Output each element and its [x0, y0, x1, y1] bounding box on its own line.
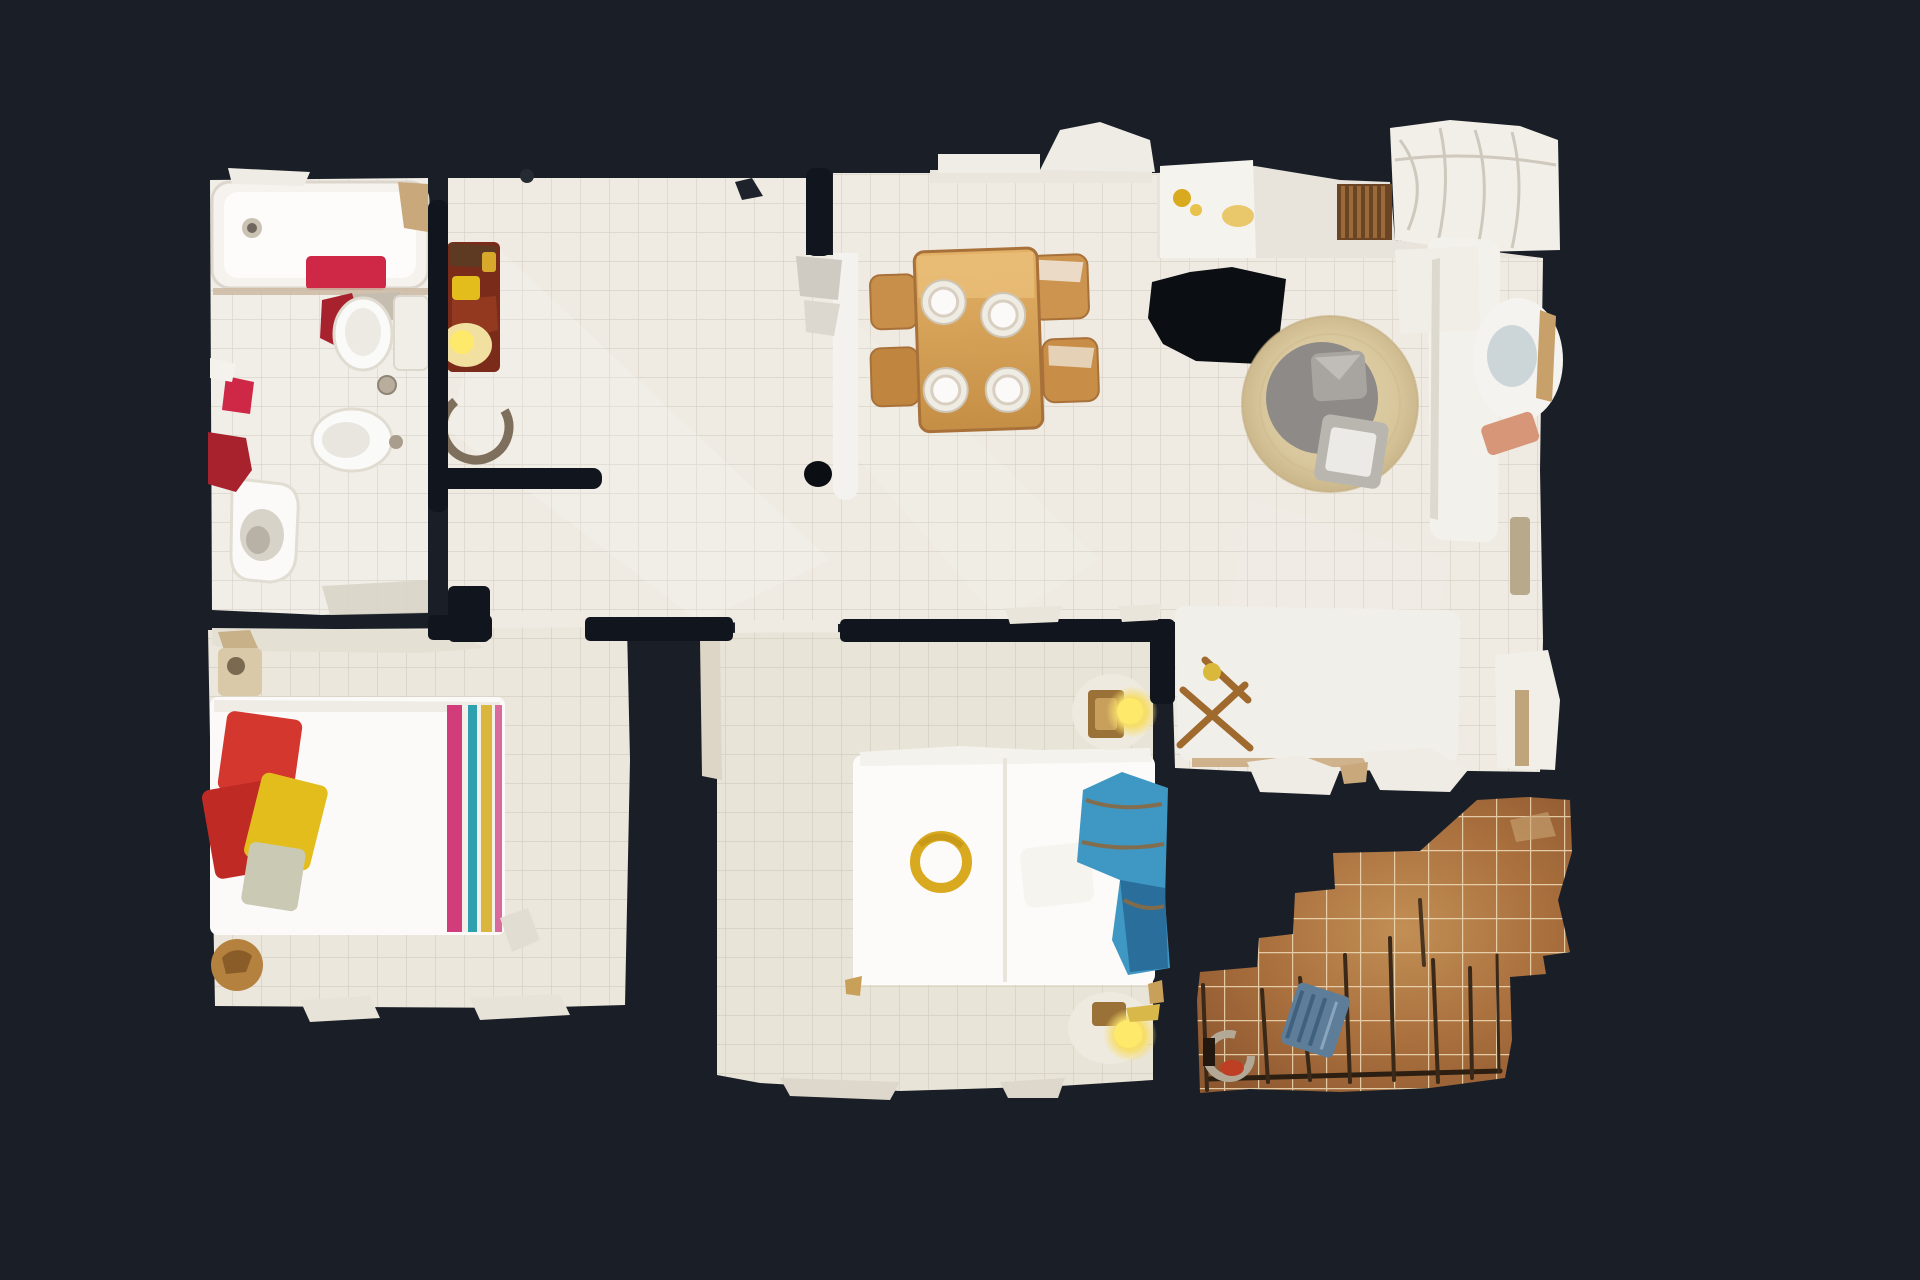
yellow-cushion	[452, 276, 480, 300]
sink-shadow	[246, 526, 270, 554]
side-shelf	[1510, 517, 1530, 595]
scan-scrap	[470, 994, 570, 1020]
sage-pillow	[240, 841, 306, 912]
wall-stub-dining	[806, 168, 832, 256]
scan-speck	[520, 169, 534, 183]
armchair-seat	[1487, 325, 1537, 387]
scan-scrap	[228, 168, 310, 186]
red-towel	[222, 376, 254, 414]
scan-dot-hole	[804, 461, 832, 487]
dining-chair	[870, 347, 919, 407]
chair-highlight	[1048, 344, 1095, 370]
window-sill	[938, 154, 1040, 173]
scan-scrap	[1118, 604, 1162, 622]
wall-bedroom-2-top	[840, 619, 1155, 642]
daybed-bench	[1175, 606, 1460, 766]
wall-remnant	[1040, 122, 1155, 172]
yellow-detail	[1203, 663, 1221, 681]
lamp-glow	[1117, 698, 1143, 724]
wall-bedroom-2-right	[1150, 619, 1175, 704]
toilet-tank	[394, 296, 428, 370]
dining-chair	[870, 274, 918, 330]
lamp-glow	[450, 330, 474, 354]
debris	[796, 256, 842, 300]
scan-scrap	[1005, 606, 1062, 624]
dark-debris	[1203, 1038, 1215, 1066]
door-frame	[1515, 690, 1529, 766]
bed-corner-wood	[1148, 980, 1164, 1004]
wall-bedrooms	[585, 617, 733, 641]
lamp-glow	[1114, 1020, 1142, 1048]
curtain-scan-mass	[1390, 120, 1560, 252]
debris	[804, 300, 840, 336]
gray-pouf	[1313, 413, 1390, 490]
room-terrace	[1197, 797, 1572, 1093]
wall-hall-corridor	[430, 468, 602, 489]
yellow-cushion	[482, 252, 496, 272]
chair-highlight	[1037, 258, 1084, 284]
toilet-bowl	[345, 308, 381, 356]
wall-bathroom-right	[428, 200, 448, 512]
nightstand-item	[227, 657, 245, 675]
gold-fixture	[1190, 204, 1202, 216]
striped-runner	[447, 705, 502, 932]
red-towel	[306, 256, 386, 290]
scan-scrap	[700, 636, 722, 780]
floor-shadow	[322, 580, 428, 615]
gray-pouf	[1310, 350, 1367, 402]
floorplan-viewport[interactable]	[0, 0, 1920, 1280]
red-detail	[1220, 1060, 1244, 1076]
wall-corner	[428, 615, 492, 640]
bidet-basin	[322, 422, 370, 458]
gold-fixture	[1173, 189, 1191, 207]
drain-hole	[247, 223, 257, 233]
floor-drain	[378, 376, 396, 394]
chandelier	[1222, 205, 1254, 227]
duvet-fold	[1003, 758, 1007, 982]
bidet-tap	[389, 435, 403, 449]
scan-scrap	[300, 996, 380, 1022]
floorplan-scan	[0, 0, 1920, 1280]
